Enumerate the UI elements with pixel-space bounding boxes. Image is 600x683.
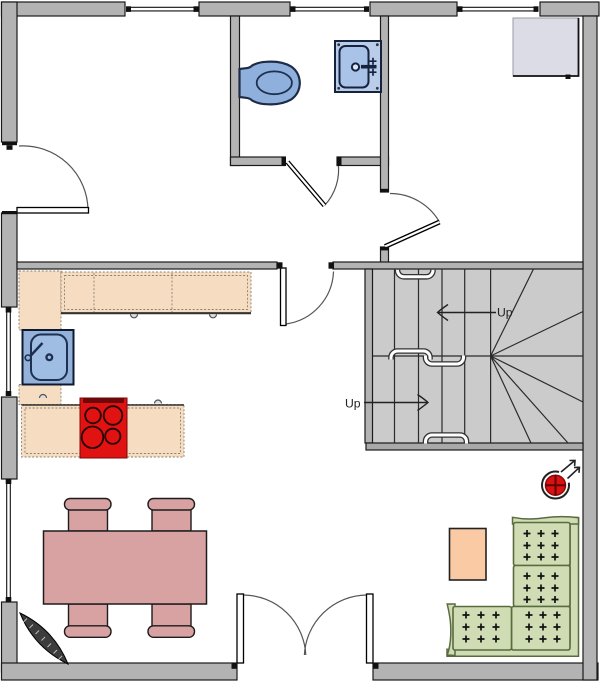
svg-text:Up: Up <box>345 397 361 411</box>
svg-text:Up: Up <box>497 306 513 320</box>
